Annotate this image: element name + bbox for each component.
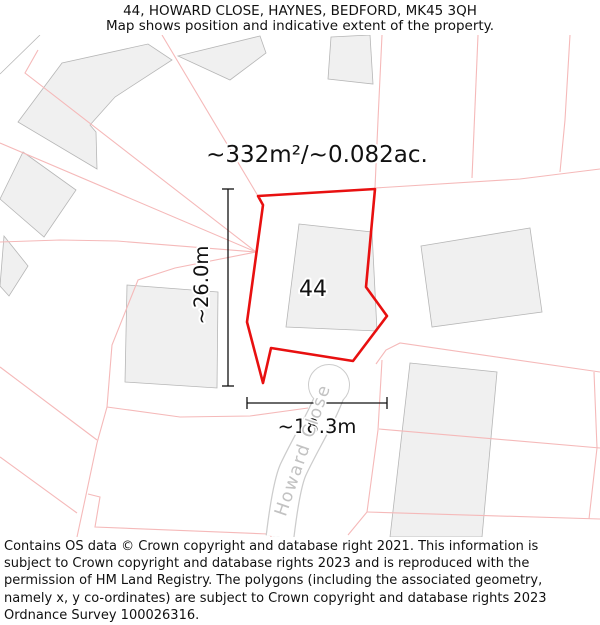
boundary-gray-line xyxy=(0,35,40,74)
parcel-line xyxy=(375,169,600,188)
parcel-line-jog xyxy=(88,494,268,534)
parcel-line xyxy=(0,367,97,440)
page-title: 44, HOWARD CLOSE, HAYNES, BEDFORD, MK45 … xyxy=(0,4,600,19)
building-right-large xyxy=(421,228,542,327)
copyright-footer: Contains OS data © Crown copyright and d… xyxy=(4,538,582,624)
page-subtitle: Map shows position and indicative extent… xyxy=(0,19,600,34)
building-left-diamond xyxy=(0,152,76,237)
parcel-line xyxy=(0,457,77,513)
copyright-text: Contains OS data © Crown copyright and d… xyxy=(4,539,547,623)
parcel-line xyxy=(560,35,570,172)
map-canvas: ~332m²/~0.082ac. 44 ~26.0m ~18.3m Howard… xyxy=(0,35,600,537)
property-map-page: 44, HOWARD CLOSE, HAYNES, BEDFORD, MK45 … xyxy=(0,0,600,625)
parcel-line xyxy=(589,372,597,519)
plot-number-label: 44 xyxy=(299,277,327,302)
area-label: ~332m²/~0.082ac. xyxy=(206,142,428,168)
height-dimension-label: ~26.0m xyxy=(190,246,213,325)
parcel-line xyxy=(0,240,256,252)
building-l-shape-top-left xyxy=(18,44,172,169)
building-small-square-top xyxy=(328,35,373,84)
building-top-center xyxy=(178,36,266,80)
building-strip-bottom-right xyxy=(390,363,497,537)
map-header: 44, HOWARD CLOSE, HAYNES, BEDFORD, MK45 … xyxy=(0,4,600,34)
parcel-line xyxy=(472,35,478,178)
building-left-diamond-small xyxy=(0,236,28,296)
building-footprints xyxy=(0,35,542,537)
parcel-line xyxy=(348,360,382,535)
